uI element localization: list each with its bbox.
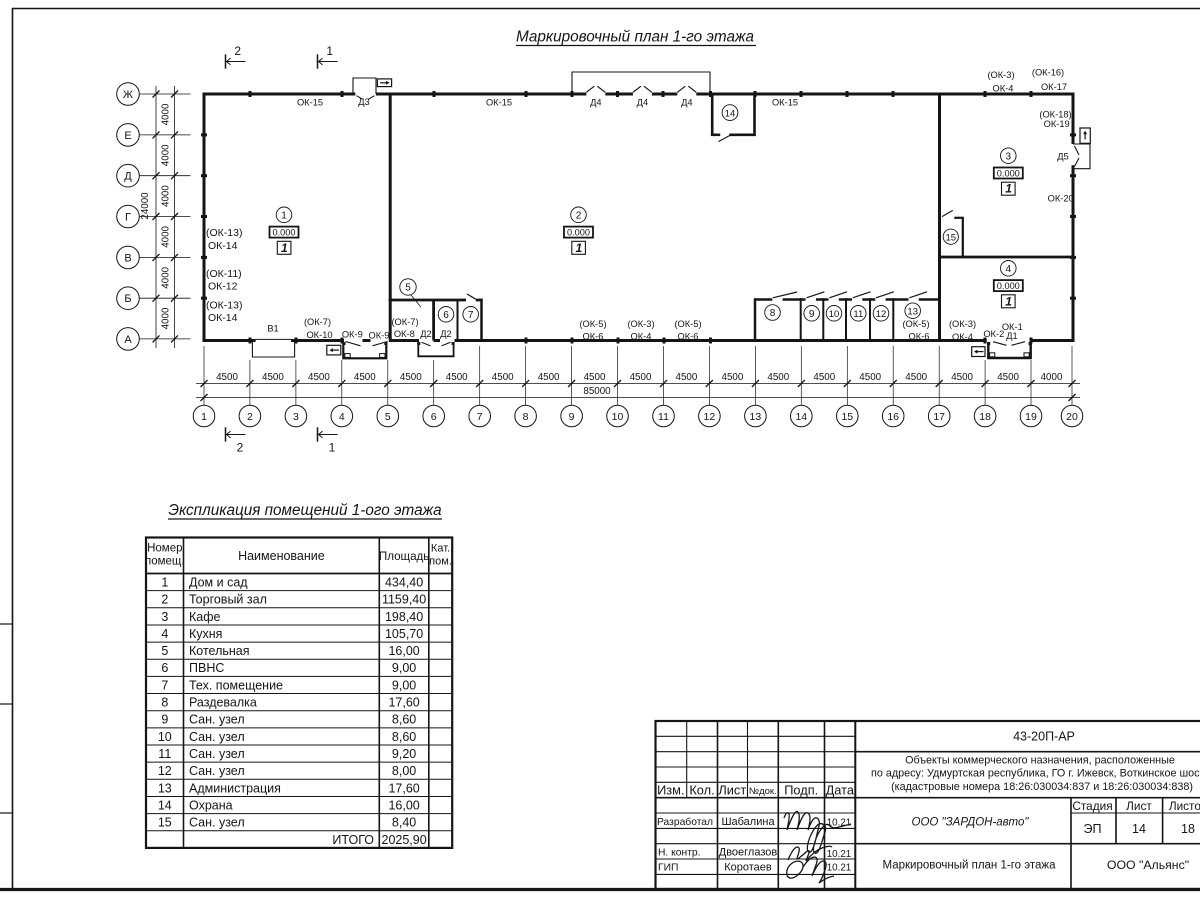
svg-text:2: 2	[234, 44, 241, 58]
svg-text:по адресу: Удмуртская республи: по адресу: Удмуртская республика, ГО г. …	[871, 768, 1200, 780]
svg-text:4500: 4500	[859, 372, 881, 383]
svg-text:8: 8	[523, 411, 529, 423]
svg-text:ООО "ЗАРДОН-авто": ООО "ЗАРДОН-авто"	[912, 817, 1030, 829]
svg-text:1: 1	[326, 44, 333, 58]
svg-text:Сан. узел: Сан. узел	[189, 816, 245, 830]
svg-text:1: 1	[161, 576, 168, 590]
svg-text:Номер: Номер	[147, 543, 182, 555]
svg-text:4500: 4500	[492, 372, 514, 383]
svg-text:14: 14	[725, 108, 736, 119]
svg-text:24000: 24000	[140, 192, 151, 220]
svg-text:Дата: Дата	[826, 782, 855, 797]
svg-text:Кол.: Кол.	[689, 782, 714, 797]
svg-text:Кухня: Кухня	[189, 627, 222, 641]
svg-text:ОК-9: ОК-9	[342, 330, 363, 340]
svg-text:ЭП: ЭП	[1084, 822, 1102, 836]
svg-text:4500: 4500	[997, 372, 1019, 383]
svg-text:4500: 4500	[400, 372, 422, 383]
svg-text:14: 14	[158, 799, 172, 813]
svg-text:Д4: Д4	[681, 97, 692, 107]
svg-text:4000: 4000	[1041, 372, 1063, 383]
svg-text:4500: 4500	[216, 372, 238, 383]
svg-text:4: 4	[1006, 264, 1012, 275]
svg-text:Н. контр.: Н. контр.	[658, 848, 701, 859]
svg-text:2025,90: 2025,90	[382, 833, 427, 847]
svg-text:Е: Е	[124, 130, 131, 142]
svg-text:10.21: 10.21	[827, 862, 852, 873]
svg-text:15: 15	[946, 232, 957, 243]
svg-text:ОК-15: ОК-15	[772, 97, 798, 107]
svg-text:пом.: пом.	[429, 556, 452, 568]
svg-text:(ОК-16): (ОК-16)	[1032, 68, 1064, 78]
svg-text:12: 12	[158, 764, 172, 778]
svg-text:434,40: 434,40	[385, 576, 423, 590]
svg-text:11: 11	[158, 747, 171, 761]
svg-text:8: 8	[770, 308, 776, 319]
svg-text:4500: 4500	[676, 372, 698, 383]
svg-text:17,60: 17,60	[388, 696, 419, 710]
svg-text:8: 8	[161, 696, 168, 710]
svg-text:4: 4	[339, 411, 345, 423]
svg-text:Площадь: Площадь	[379, 550, 429, 563]
svg-text:2: 2	[161, 593, 168, 607]
svg-text:8,60: 8,60	[392, 730, 416, 744]
svg-text:Раздевалка: Раздевалка	[189, 696, 257, 710]
svg-text:(ОК-3): (ОК-3)	[627, 319, 654, 329]
svg-text:ГИП: ГИП	[658, 863, 678, 874]
svg-text:13: 13	[750, 411, 762, 423]
svg-text:Д3: Д3	[358, 97, 369, 107]
svg-text:43-20П-АР: 43-20П-АР	[1013, 730, 1075, 744]
svg-text:Объекты коммерческого назначен: Объекты коммерческого назначения, распол…	[905, 755, 1175, 767]
svg-text:4000: 4000	[161, 185, 172, 207]
svg-text:(ОК-7): (ОК-7)	[391, 317, 418, 327]
svg-text:4500: 4500	[630, 372, 652, 383]
svg-text:11: 11	[658, 411, 669, 423]
svg-text:Администрация: Администрация	[189, 781, 281, 795]
svg-text:6: 6	[161, 661, 168, 675]
svg-text:№док.: №док.	[749, 786, 777, 797]
svg-text:16: 16	[887, 411, 899, 423]
svg-text:4500: 4500	[308, 372, 330, 383]
svg-text:9: 9	[161, 713, 168, 727]
svg-text:3: 3	[1006, 151, 1012, 162]
svg-text:ОК-15: ОК-15	[486, 97, 512, 107]
svg-text:12: 12	[704, 411, 716, 423]
svg-text:Охрана: Охрана	[189, 799, 233, 813]
svg-text:Торговый зал: Торговый зал	[189, 593, 267, 607]
svg-text:4500: 4500	[446, 372, 468, 383]
svg-text:13: 13	[907, 306, 918, 317]
svg-text:18: 18	[1181, 822, 1195, 836]
svg-text:Д: Д	[124, 171, 132, 183]
svg-text:ОК-17: ОК-17	[1041, 82, 1067, 92]
svg-text:0.000: 0.000	[997, 281, 1020, 291]
svg-text:3: 3	[293, 411, 299, 423]
svg-text:105,70: 105,70	[385, 627, 423, 641]
svg-text:16,00: 16,00	[388, 799, 419, 813]
svg-text:4000: 4000	[161, 225, 172, 247]
svg-text:4500: 4500	[538, 372, 560, 383]
svg-text:9: 9	[569, 411, 575, 423]
svg-text:Лист: Лист	[1126, 799, 1152, 813]
svg-text:8,40: 8,40	[392, 816, 416, 830]
svg-text:Сан. узел: Сан. узел	[189, 747, 245, 761]
svg-text:0.000: 0.000	[997, 168, 1020, 178]
svg-text:16,00: 16,00	[388, 644, 419, 658]
svg-text:ОК-6: ОК-6	[678, 331, 699, 341]
svg-text:Д5: Д5	[1057, 151, 1068, 161]
svg-text:ОК-14: ОК-14	[208, 312, 238, 324]
svg-text:9,20: 9,20	[392, 747, 416, 761]
svg-text:13: 13	[158, 781, 172, 795]
svg-text:Сан. узел: Сан. узел	[189, 730, 245, 744]
svg-text:ОК-14: ОК-14	[208, 240, 238, 252]
svg-text:Тех. помещение: Тех. помещение	[189, 678, 283, 692]
svg-text:10.21: 10.21	[827, 849, 852, 860]
svg-text:А: А	[124, 334, 132, 346]
svg-text:20: 20	[1066, 411, 1078, 423]
svg-text:9,00: 9,00	[392, 678, 416, 692]
svg-text:В: В	[124, 252, 131, 264]
svg-text:7: 7	[477, 411, 483, 423]
svg-text:(ОК-5): (ОК-5)	[674, 319, 701, 329]
svg-text:Маркировочный план 1-го этажа: Маркировочный план 1-го этажа	[516, 29, 754, 46]
svg-text:4500: 4500	[951, 372, 973, 383]
svg-text:1: 1	[329, 440, 336, 454]
svg-text:Д2: Д2	[420, 329, 431, 339]
svg-text:4500: 4500	[354, 372, 376, 383]
svg-text:ОК-4: ОК-4	[631, 331, 652, 341]
svg-text:2: 2	[247, 411, 253, 423]
svg-text:1: 1	[281, 210, 287, 221]
svg-text:8,00: 8,00	[392, 764, 416, 778]
svg-text:12: 12	[876, 309, 887, 320]
svg-text:4000: 4000	[161, 144, 172, 166]
svg-text:ОК-8: ОК-8	[394, 329, 415, 339]
svg-text:Сан. узел: Сан. узел	[189, 713, 245, 727]
svg-text:Д4: Д4	[590, 97, 601, 107]
svg-text:Дом и сад: Дом и сад	[189, 576, 248, 590]
svg-text:9,00: 9,00	[392, 661, 416, 675]
svg-text:Сан. узел: Сан. узел	[189, 764, 245, 778]
svg-text:(кадастровые номера 18:26:0300: (кадастровые номера 18:26:030034:837 и 1…	[891, 781, 1193, 793]
svg-text:ОК-6: ОК-6	[909, 331, 930, 341]
svg-text:(ОК-13): (ОК-13)	[206, 227, 242, 239]
svg-text:Ж: Ж	[123, 89, 133, 101]
svg-text:2: 2	[576, 210, 582, 221]
svg-text:Маркировочный план 1-го этажа: Маркировочный план 1-го этажа	[883, 859, 1057, 871]
svg-text:Листов: Листов	[1169, 799, 1200, 813]
svg-text:Д1: Д1	[1006, 331, 1017, 341]
svg-text:1: 1	[1005, 182, 1012, 196]
svg-text:Подп.: Подп.	[784, 782, 818, 797]
svg-text:6: 6	[431, 411, 437, 423]
svg-text:0.000: 0.000	[273, 227, 296, 237]
svg-text:В1: В1	[267, 323, 278, 333]
svg-text:5: 5	[385, 411, 391, 423]
svg-text:7: 7	[161, 678, 168, 692]
svg-text:9: 9	[809, 309, 815, 320]
svg-text:ОК-10: ОК-10	[306, 330, 332, 340]
svg-text:4500: 4500	[905, 372, 927, 383]
svg-text:10: 10	[612, 411, 624, 423]
svg-text:Кафе: Кафе	[189, 610, 221, 624]
svg-text:Коротаев: Коротаев	[724, 862, 772, 874]
svg-text:(ОК-3): (ОК-3)	[987, 70, 1014, 80]
svg-text:(ОК-13): (ОК-13)	[206, 300, 242, 312]
svg-text:(ОК-5): (ОК-5)	[579, 319, 606, 329]
svg-text:11: 11	[853, 309, 863, 320]
svg-text:ООО "Альянс": ООО "Альянс"	[1107, 858, 1189, 872]
svg-text:10: 10	[158, 730, 172, 744]
svg-text:1159,40: 1159,40	[382, 593, 426, 607]
svg-text:ОК-4: ОК-4	[952, 332, 973, 342]
svg-text:(ОК-3): (ОК-3)	[949, 319, 976, 329]
svg-text:ОК-19: ОК-19	[1044, 119, 1070, 129]
svg-text:ОК-15: ОК-15	[297, 97, 323, 107]
svg-text:Д4: Д4	[637, 97, 648, 107]
svg-text:Изм.: Изм.	[657, 782, 684, 797]
svg-text:Наименование: Наименование	[238, 549, 325, 563]
svg-text:0.000: 0.000	[567, 227, 590, 237]
svg-text:19: 19	[1025, 411, 1037, 423]
svg-text:ОК-9: ОК-9	[369, 330, 390, 340]
svg-text:4500: 4500	[767, 372, 789, 383]
svg-text:(ОК-7): (ОК-7)	[304, 317, 331, 327]
svg-text:ОК-20: ОК-20	[1048, 194, 1074, 204]
svg-text:Котельная: Котельная	[189, 644, 250, 658]
svg-text:(ОК-11): (ОК-11)	[206, 268, 242, 280]
svg-text:18: 18	[979, 411, 991, 423]
svg-text:Разработал: Разработал	[657, 816, 713, 828]
svg-text:ИТОГО: ИТОГО	[332, 833, 374, 847]
svg-text:14: 14	[1132, 822, 1146, 836]
svg-text:1: 1	[1005, 294, 1012, 308]
svg-text:85000: 85000	[583, 386, 611, 397]
svg-text:4500: 4500	[722, 372, 744, 383]
svg-text:4500: 4500	[262, 372, 284, 383]
svg-text:ОК-12: ОК-12	[208, 281, 238, 293]
svg-text:8,60: 8,60	[392, 713, 416, 727]
svg-text:(ОК-5): (ОК-5)	[902, 319, 929, 329]
svg-text:(ОК-18): (ОК-18)	[1039, 110, 1071, 120]
svg-text:Кат.: Кат.	[431, 543, 450, 555]
svg-text:5: 5	[161, 644, 168, 658]
svg-text:Г: Г	[125, 212, 131, 224]
svg-text:1: 1	[201, 411, 207, 423]
svg-text:4500: 4500	[584, 372, 606, 383]
svg-text:4000: 4000	[161, 307, 172, 329]
svg-text:ОК-6: ОК-6	[583, 331, 604, 341]
svg-text:3: 3	[161, 610, 168, 624]
svg-text:10: 10	[829, 309, 840, 320]
svg-text:15: 15	[158, 816, 172, 830]
svg-text:5: 5	[405, 283, 411, 294]
svg-text:4500: 4500	[813, 372, 835, 383]
svg-text:17,60: 17,60	[388, 781, 419, 795]
svg-text:2: 2	[237, 440, 244, 454]
svg-text:Лист: Лист	[718, 782, 746, 797]
svg-text:Стадия: Стадия	[1072, 799, 1112, 813]
svg-text:Д2: Д2	[440, 329, 451, 339]
svg-text:4000: 4000	[161, 266, 172, 288]
svg-text:1: 1	[575, 241, 582, 255]
svg-text:198,40: 198,40	[385, 610, 423, 624]
svg-text:4000: 4000	[161, 103, 172, 125]
svg-text:1: 1	[281, 241, 288, 255]
svg-text:Двоеглазов: Двоеглазов	[719, 847, 778, 859]
svg-text:Б: Б	[124, 293, 131, 305]
svg-text:7: 7	[468, 310, 474, 321]
svg-text:ОК-4: ОК-4	[993, 84, 1014, 94]
svg-text:17: 17	[933, 411, 945, 423]
svg-text:14: 14	[795, 411, 807, 423]
svg-text:ПВНС: ПВНС	[189, 661, 224, 675]
svg-text:6: 6	[443, 310, 449, 321]
svg-text:Шабалина: Шабалина	[721, 816, 775, 828]
svg-text:4: 4	[161, 627, 168, 641]
svg-text:помещ.: помещ.	[145, 556, 185, 568]
svg-text:Экспликация помещений 1-ого эт: Экспликация помещений 1-ого этажа	[168, 502, 441, 519]
svg-text:15: 15	[841, 411, 853, 423]
